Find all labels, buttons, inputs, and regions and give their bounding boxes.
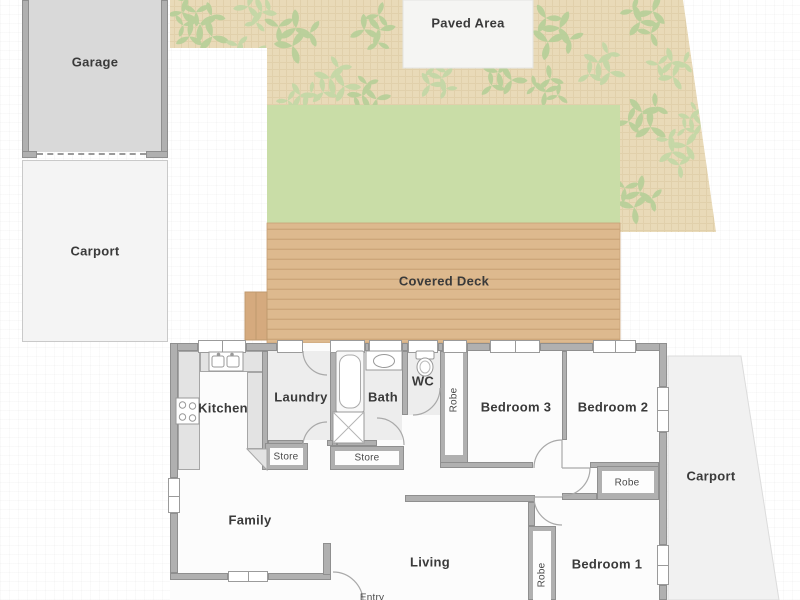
wall-segment (161, 0, 168, 158)
kitchen-counter-top (200, 351, 267, 372)
label-bath: Bath (368, 390, 398, 405)
label-kitchen: Kitchen (198, 401, 248, 416)
label-family: Family (229, 513, 272, 528)
label-store-1: Store (274, 452, 299, 463)
label-bedroom2: Bedroom 2 (578, 400, 649, 415)
wall-segment (146, 151, 168, 158)
label-robe-bed1-top: Robe (615, 478, 640, 489)
label-paved-area: Paved Area (431, 16, 504, 31)
lawn-area (267, 105, 620, 223)
garden-foliage (155, 0, 715, 229)
label-store-2: Store (355, 453, 380, 464)
garden-area (170, 0, 716, 232)
label-living: Living (410, 555, 450, 570)
garage-door-dashed-line (37, 153, 146, 155)
label-covered-deck: Covered Deck (399, 274, 489, 289)
kitchen-counter-left (178, 351, 200, 470)
label-carport-right: Carport (686, 469, 735, 484)
floor-plan-canvas: Garage Carport Paved Area Covered Deck C… (0, 0, 800, 600)
deck-step (245, 292, 267, 340)
paved-area (403, 0, 533, 68)
wall-segment (22, 151, 37, 158)
label-robe-bed3: Robe (449, 388, 460, 413)
label-wc: WC (412, 374, 434, 389)
wall-segment (22, 0, 29, 158)
label-carport-left: Carport (70, 244, 119, 259)
label-robe-bed1-side: Robe (537, 563, 548, 588)
label-laundry: Laundry (274, 390, 327, 405)
label-garage: Garage (72, 55, 119, 70)
label-bedroom3: Bedroom 3 (481, 400, 552, 415)
label-bedroom1: Bedroom 1 (572, 557, 643, 572)
garage-area (29, 0, 161, 152)
label-entry: Entry (360, 593, 384, 600)
